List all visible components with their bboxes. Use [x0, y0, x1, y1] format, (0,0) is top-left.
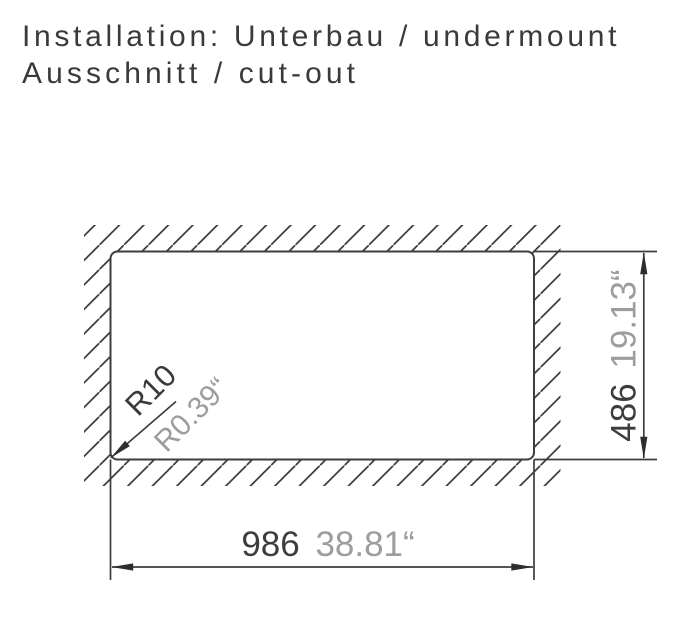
svg-text:Ausschnitt / cut-out: Ausschnitt / cut-out: [22, 57, 359, 90]
svg-text:986 38.81“: 986 38.81“: [241, 525, 414, 564]
svg-text:486 19.13“: 486 19.13“: [605, 269, 644, 441]
svg-text:Installation: Unterbau / under: Installation: Unterbau / undermount: [22, 20, 620, 53]
